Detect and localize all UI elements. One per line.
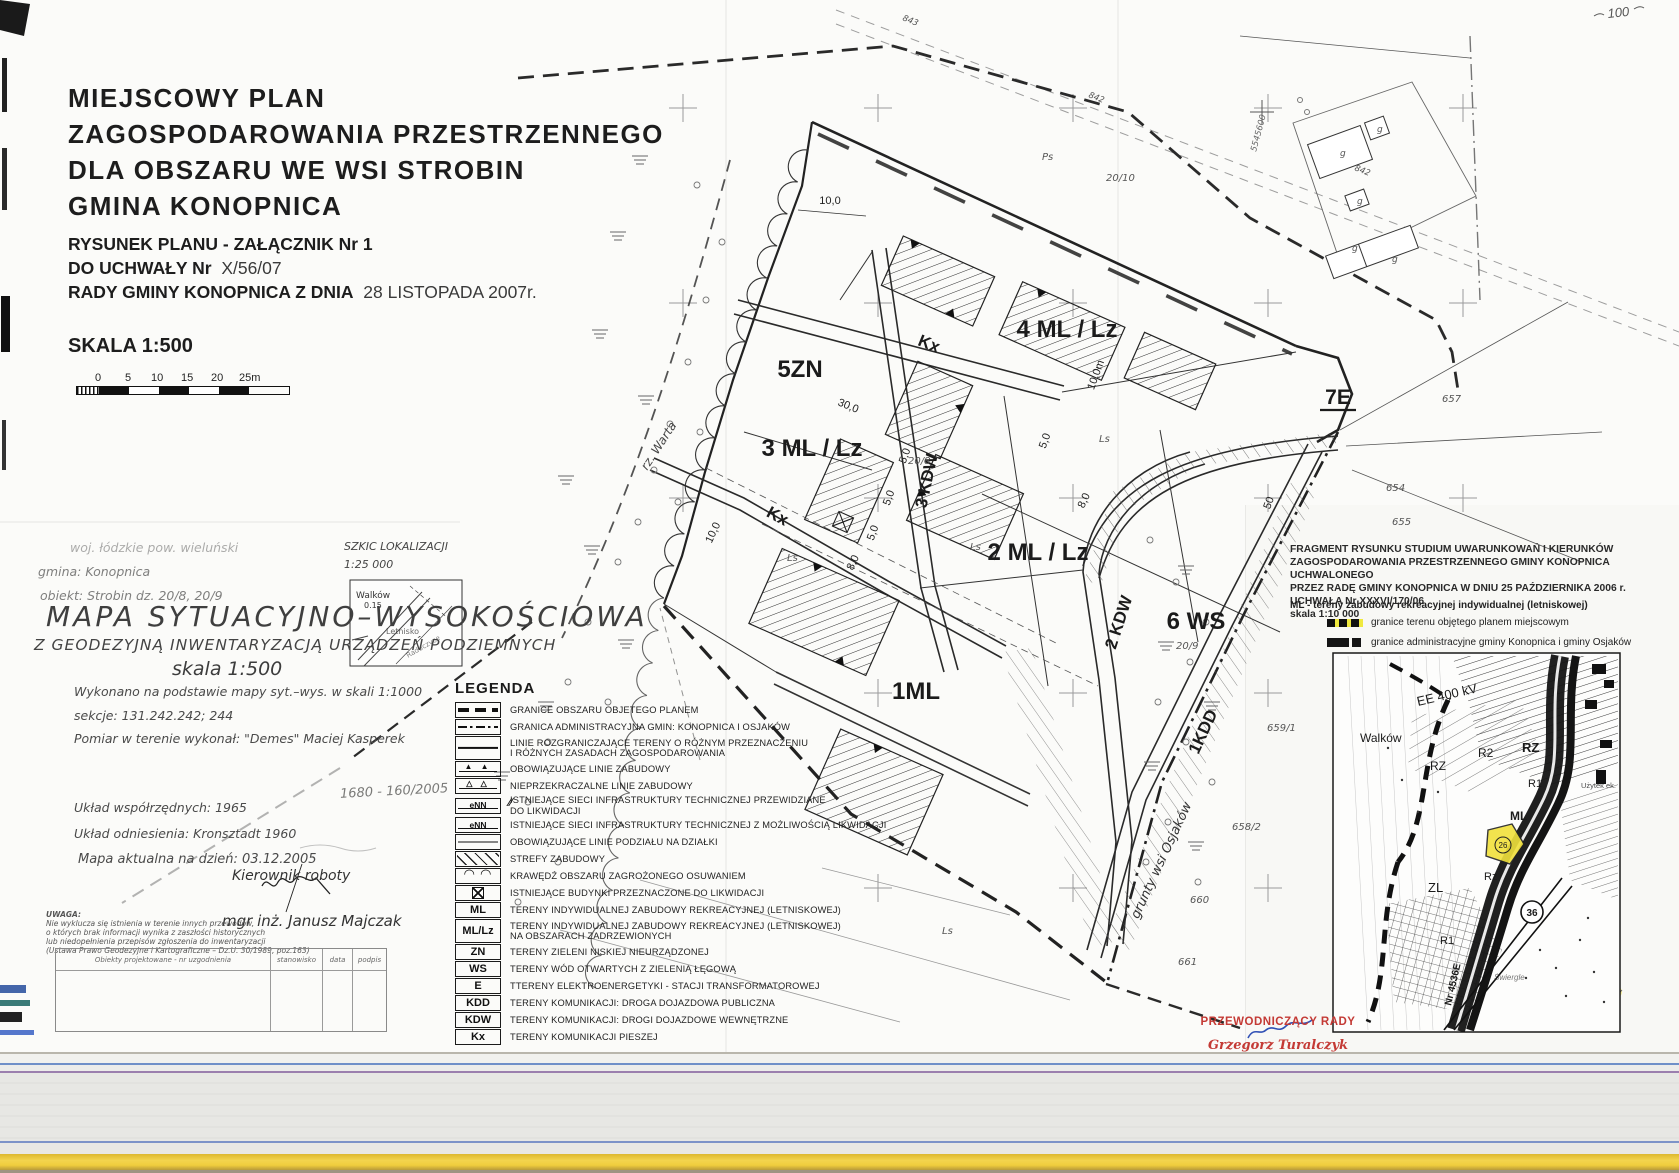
studium-legend-plan-label: granice terenu objętego planem miejscowy… [1371,617,1569,628]
resolution-value: X/56/07 [221,258,281,278]
legend-label: LINIE ROZGRANICZAJĄCE TERENY O RÓŻNYM PR… [510,738,808,759]
approvals-table: Obiekty projektowane - nr uzgodnienia st… [55,948,387,1032]
parcel-label: 843 [901,14,920,29]
table-cell [56,971,271,1031]
legend-row: MLTERENY INDYWIDUALNEJ ZABUDOWY REKREACY… [455,902,895,918]
zone-label-4mllz: 4 ML / Lz [1017,316,1118,343]
studium-r2-label: R2 [1478,746,1494,760]
studium-road-badge: 36 [1526,908,1538,919]
building-letter: g [1352,244,1358,254]
scale-tick: 5 [125,372,131,384]
network-possible-liquidation-symbol: eNN [455,817,501,833]
admin-boundary-symbol [455,719,501,735]
council-label: RADY GMINY KONOPNICA Z DNIA [68,282,354,302]
legend-row: eNNISTNIEJĄCE SIECI INFRASTRUKTURY TECHN… [455,795,895,816]
kdw-code: KDW [455,1012,501,1028]
building-letter: g [1357,197,1363,207]
parcel-label: Ps [1042,152,1053,163]
studium-r1b-label: R1 [1440,935,1454,947]
legend-row: OBOWIĄZUJĄCE LINIE ZABUDOWY [455,761,895,777]
sketch-scale: 1:25 000 [344,558,393,571]
building-letter: g [1392,255,1398,265]
table-cell [353,971,386,1031]
dim-label: 10,0 [703,520,723,544]
building-letter: g [1377,125,1383,135]
council-line: RADY GMINY KONOPNICA Z DNIA 28 LISTOPADA… [68,280,537,304]
studium-swiergle-label: Świergle [1494,973,1525,982]
legend-row: GRANICA ADMINISTRACYJNA GMIN: KONOPNICA … [455,719,895,735]
legend-label: TERENY INDYWIDUALNEJ ZABUDOWY REKREACYJN… [510,921,841,942]
legend-row: STREFY ZABUDOWY [455,851,895,867]
plan-title-line: ZAGOSPODAROWANIA PRZESTRZENNEGO [68,116,664,152]
scale-tick: 15 [181,372,193,384]
plan-title-line: DLA OBSZARU WE WSI STROBIN [68,152,664,188]
attachment-block: RYSUNEK PLANU - ZAŁĄCZNIK Nr 1 DO UCHWAŁ… [68,232,537,304]
north-buildings [1250,82,1476,279]
map-currency-line: Mapa aktualna na dzień: 03.12.2005 [78,852,317,867]
parcel-label: 654 [1386,483,1405,494]
council-chairman-name: Grzegorz Turalczyk [1188,1038,1368,1053]
dim-label: 10,0 [819,195,840,207]
table-header: Obiekty projektowane - nr uzgodnienia [56,949,271,971]
legend-label: ISTNIEJĄCE SIECI INFRASTRUKTURY TECHNICZ… [510,795,826,816]
plan-boundary-symbol [455,702,501,718]
table-cell [271,971,323,1031]
legend-label: GRANICE OBSZARU OBJETEGO PLANEM [510,705,699,716]
scan-edge-artifacts [0,0,34,1035]
legend-row: KxTERENY KOMUNIKACJI PIESZEJ [455,1029,895,1045]
max-building-line-symbol [455,778,501,794]
studium-ml-label: ML [1510,809,1527,823]
legend-label: TERENY INDYWIDUALNEJ ZABUDOWY REKREACYJN… [510,905,841,916]
legend-label: NIEPRZEKRACZALNE LINIE ZABUDOWY [510,781,693,792]
scale-tick: 20 [211,372,223,384]
legend-row: ML/LzTERENY INDYWIDUALNEJ ZABUDOWY REKRE… [455,919,895,943]
studium-walkow-label: Walków [1360,731,1402,745]
studium-legend-admin-label: granice administracyjne gminy Konopnica … [1371,637,1631,648]
ws-code: WS [455,961,501,977]
studium-inset-map: EE 400 kV Walków R2 RZ RZ R1 ML Rz ZL R1… [1333,653,1620,1032]
manager-label: Kierownik roboty [232,868,350,884]
parcel-label: 661 [1178,957,1197,968]
dim-label: 5,0 [865,524,882,542]
mandatory-building-line-symbol [455,761,501,777]
legend: LEGENDA GRANICE OBSZARU OBJETEGO PLANEM … [455,680,895,1046]
river-label: rz. Warta [638,419,679,472]
legend-row: ZNTERENY ZIELENI NISKIEJ NIEURZĄDZONEJ [455,944,895,960]
scale-bar: 0 5 10 15 20 25m [76,372,296,398]
parcel-label: 655 [1392,517,1411,528]
council-chairman-stamp-title: PRZEWODNICZĄCY RADY [1188,1016,1368,1028]
legend-label: TERENY KOMUNIKACJI: DROGI DOJAZDOWE WEWN… [510,1015,788,1026]
table-cell [323,971,353,1031]
building-zone-symbol [455,851,501,867]
legend-label: KRAWĘDŹ OBSZARU ZAGROŻONEGO OSUWANIEM [510,871,746,882]
legend-row: KDDTERENY KOMUNIKACJI: DROGA DOJAZDOWA P… [455,995,895,1011]
parcel-label: 842 [1087,91,1106,106]
kdd-code: KDD [455,995,501,1011]
legend-label: TERENY WÓD OTWARTYCH Z ZIELENIĄ ŁĘGOWĄ [510,964,736,975]
legend-row: LINIE ROZGRANICZAJĄCE TERENY O RÓŻNYM PR… [455,736,895,760]
legend-row: ETTERENY ELEKTROENERGETYKI - STACJI TRAN… [455,978,895,994]
plan-title-line: MIEJSCOWY PLAN [68,80,664,116]
studium-ml-text: ML - tereny zabudowy rekreacyjnej indywi… [1290,600,1588,611]
plan-title-line: GMINA KONOPNICA [68,188,664,224]
basis-line: Wykonano na podstawie mapy syt.–wys. w s… [74,684,422,699]
voivodeship-line: woj. łódzkie pow. wieluński [70,540,238,555]
e-code: E [455,978,501,994]
ls-label: Ls [970,542,981,553]
dimension-line [798,210,866,216]
kx-code: Kx [455,1029,501,1045]
table-header: podpis [353,949,386,971]
studium-zl-label: ZL [1428,880,1443,895]
survey-map-subtitle: Z GEODEZYJNĄ INWENTARYZACJĄ URZĄDZEŃ POD… [34,636,556,654]
parcel-label: 20/8 [908,456,930,467]
studium-r1a-label: R1 [1528,778,1542,790]
studium-rz2-label: RZ [1430,759,1446,773]
legend-label: TERENY KOMUNIKACJI: DROGA DOJAZDOWA PUBL… [510,998,775,1009]
parcel-label: 20/9 [1176,641,1198,652]
zone-label-1ml: 1ML [892,678,940,705]
plan-title-block: MIEJSCOWY PLAN ZAGOSPODAROWANIA PRZESTRZ… [68,80,664,224]
zn-code: ZN [455,944,501,960]
legend-row: OBOWIĄZUJĄCE LINIE PODZIAŁU NA DZIAŁKI [455,834,895,850]
ls-label: Ls [1099,434,1110,445]
scale-tick: 25m [239,372,260,384]
zone-label-5zn: 5ZN [777,356,822,383]
legend-label: GRANICA ADMINISTRACYJNA GMIN: KONOPNICA … [510,722,790,733]
coordinate-label: 5545600 [1249,114,1268,153]
resolution-line: DO UCHWAŁY Nr X/56/07 [68,256,537,280]
studium-rz-label: RZ [1522,740,1539,755]
scale-tick: 10 [151,372,163,384]
legend-label: OBOWIĄZUJĄCE LINIE PODZIAŁU NA DZIAŁKI [510,837,718,848]
resolution-label: DO UCHWAŁY Nr [68,258,212,278]
legend-label: ISTNIEJĄCE SIECI INFRASTRUKTURY TECHNICZ… [510,820,886,831]
survey-map-title: MAPA SYTUACYJNO–WYSOKOŚCIOWA [46,600,648,633]
datum-line: Układ odniesienia: Kronsztadt 1960 [74,826,296,841]
table-header: stanowisko [271,949,323,971]
legend-row: ISTNIEJĄCE BUDYNKI PRZEZNACZONE DO LIKWI… [455,885,895,901]
legend-label: STREFY ZABUDOWY [510,854,605,865]
survey-map-scale: skala 1:500 [172,658,282,680]
commune-line: gmina: Konopnica [38,564,150,579]
handwritten-number: 100 [1607,4,1631,21]
yellow-boundary-symbol [1327,619,1363,627]
admin-blocks-symbol [1327,638,1363,647]
landslide-edge-symbol [455,868,501,884]
parcel-label: 659/1 [1267,723,1296,734]
fieldwork-line: Pomiar w terenie wykonał: "Demes" Maciej… [74,731,405,746]
studium-parcel-number: 26 [1499,841,1508,850]
parcel-label: 660 [1190,895,1209,906]
zone-label-6ws: 6 WS [1167,608,1226,635]
legend-label: TTERENY ELEKTROENERGETYKI - STACJI TRANS… [510,981,820,992]
studium-ml-line: ML - tereny zabudowy rekreacyjnej indywi… [1290,600,1588,611]
dim-label: 8,0 [845,553,862,572]
scanned-plan-page: 5ZN 3 ML / Lz 4 ML / Lz 2 ML / Lz 1ML 6 … [0,0,1679,1173]
attachment-line: RYSUNEK PLANU - ZAŁĄCZNIK Nr 1 [68,232,537,256]
legend-row: WSTERENY WÓD OTWARTYCH Z ZIELENIĄ ŁĘGOWĄ [455,961,895,977]
scale-bar-graphic [76,386,290,395]
parcel-label: 657 [1442,394,1462,405]
sketch-title: SZKIC LOKALIZACJI [344,540,448,553]
scale-bar-numbers: 0 5 10 15 20 25m [76,372,296,384]
studium-rzl-label: Rz [1484,871,1497,883]
building-letter: g [1340,149,1346,159]
parcel-label: 658/2 [1232,822,1261,833]
ls-label: Ls [787,553,798,564]
table-header: data [323,949,353,971]
dim-label: 8,0 [1076,491,1093,510]
studium-heading-line: PRZEZ RADĘ GMINY KONOPNICA W DNIU 25 PAŹ… [1290,582,1675,595]
building-liquidation-symbol [455,885,501,901]
studium-legend-plan-row: granice terenu objętego planem miejscowy… [1327,617,1569,628]
studium-heading-line: ZAGOSPODAROWANIA PRZESTRZENNEGO GMINY KO… [1290,556,1675,582]
studium-uzytek-label: Użytek ek. [1581,781,1616,790]
legend-title: LEGENDA [455,680,895,697]
council-value: 28 LISTOPADA 2007r. [363,282,537,302]
zone-label-2mllz: 2 ML / Lz [988,539,1089,566]
dim-label: 5,0 [1037,432,1054,450]
parcel-label: 20/10 [1106,173,1135,184]
studium-heading-line: FRAGMENT RYSUNKU STUDIUM UWARUNKOWAŃ I K… [1290,543,1675,556]
zoning-line-symbol [455,736,501,760]
legend-label: ISTNIEJĄCE BUDYNKI PRZEZNACZONE DO LIKWI… [510,888,764,899]
ml-code: ML [455,902,501,918]
network-liquidation-symbol: eNN [455,798,501,814]
legend-row: GRANICE OBSZARU OBJETEGO PLANEM [455,702,895,718]
sections-line: sekcje: 131.242.242; 244 [74,708,233,723]
zone-label-7e: 7E [1325,386,1351,409]
plot-division-symbol [455,834,501,850]
parcel-label: 842 [1353,164,1372,179]
dim-label: 30,0 [836,397,860,416]
legend-label: TERENY KOMUNIKACJI PIESZEJ [510,1032,658,1043]
coord-system-line: Układ współrzędnych: 1965 [74,800,247,815]
studium-legend-admin-row: granice administracyjne gminy Konopnica … [1327,637,1631,648]
scale-label: SKALA 1:500 [68,335,193,358]
slope-hatch-bands [1002,432,1336,950]
legend-label: OBOWIĄZUJĄCE LINIE ZABUDOWY [510,764,671,775]
ls-label: Ls [942,926,953,937]
mllz-code: ML/Lz [455,919,501,943]
dashed-thin-lines [706,468,1098,686]
legend-row: KRAWĘDŹ OBSZARU ZAGROŻONEGO OSUWANIEM [455,868,895,884]
legend-row: KDWTERENY KOMUNIKACJI: DROGI DOJAZDOWE W… [455,1012,895,1028]
scale-tick: 0 [95,372,101,384]
zone-label-3mllz: 3 ML / Lz [762,435,863,462]
dim-label: 5,0 [881,489,898,507]
legend-row: NIEPRZEKRACZALNE LINIE ZABUDOWY [455,778,895,794]
legend-row: eNNISTNIEJĄCE SIECI INFRASTRUKTURY TECHN… [455,817,895,833]
legend-label: TERENY ZIELENI NISKIEJ NIEURZĄDZONEJ [510,947,709,958]
